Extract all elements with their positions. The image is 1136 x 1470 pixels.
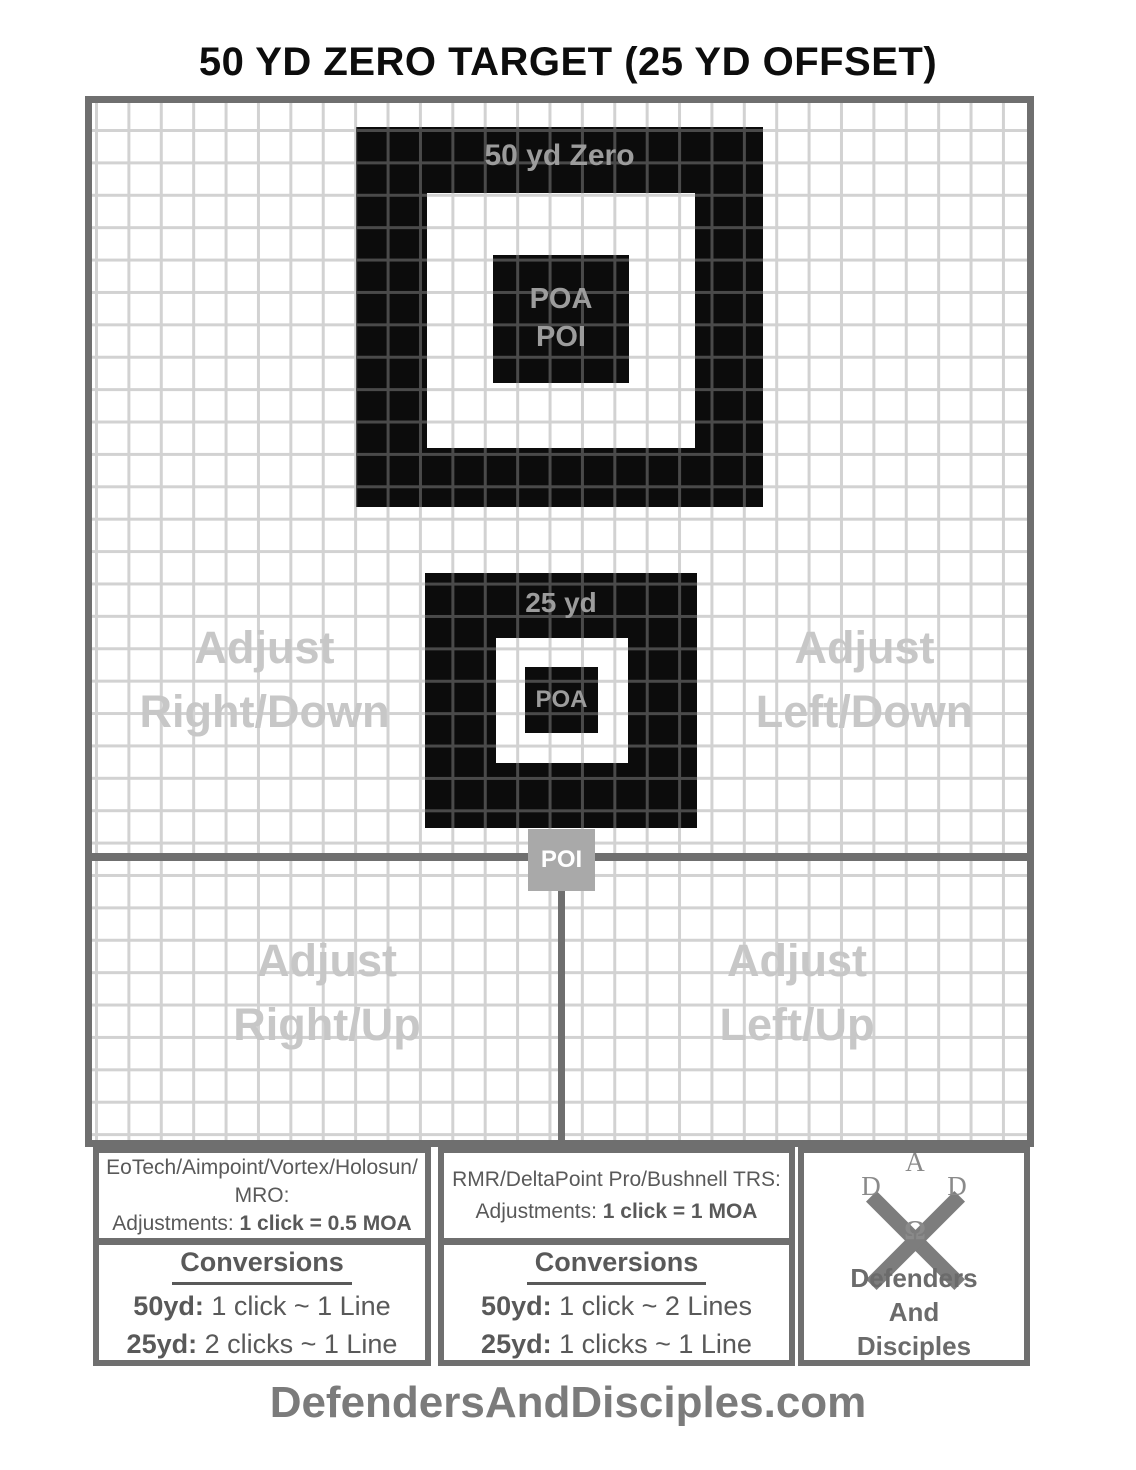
optics-info-eotech: EoTech/Aimpoint/Vortex/Holosun/ MRO: Adj… — [99, 1153, 425, 1238]
watermark-adjust-left-down: Adjust Left/Down — [692, 616, 1037, 744]
conversion-value: 2 clicks ~ 1 Line — [197, 1329, 397, 1359]
watermark-line: Right/Up — [152, 993, 502, 1057]
watermark-line: Right/Down — [92, 680, 437, 744]
panel-brand-logo: A D D Ω Defenders And Disciples — [798, 1147, 1030, 1366]
brand-name-line: And — [804, 1295, 1024, 1329]
watermark-adjust-right-up: Adjust Right/Up — [152, 929, 502, 1057]
watermark-adjust-right-down: Adjust Right/Down — [92, 616, 437, 744]
adjustments-line: Adjustments: 1 click = 1 MOA — [476, 1196, 758, 1228]
target-25yd-outer-square: 25 yd POA — [425, 573, 697, 828]
poa-text: POA — [530, 284, 593, 316]
optics-info-rmr: RMR/DeltaPoint Pro/Bushnell TRS: Adjustm… — [444, 1153, 789, 1238]
target-50yd-center-square: POA POI — [493, 255, 629, 383]
conversion-label: 25yd: — [481, 1329, 552, 1359]
panel-eotech-aimpoint: EoTech/Aimpoint/Vortex/Holosun/ MRO: Adj… — [93, 1147, 431, 1366]
logo-letter-alpha: A — [895, 1147, 935, 1178]
watermark-line: Adjust — [692, 616, 1037, 680]
poi-text: POI — [536, 322, 586, 354]
conversion-label: 25yd: — [127, 1329, 198, 1359]
logo-letter-d-left: D — [851, 1171, 891, 1202]
watermark-adjust-left-up: Adjust Left/Up — [622, 929, 972, 1057]
adjustments-value: 1 click = 1 MOA — [603, 1200, 758, 1223]
conversions-rmr: Conversions 50yd: 1 click ~ 2 Lines 25yd… — [444, 1245, 789, 1360]
logo-area: A D D Ω Defenders And Disciples — [804, 1153, 1024, 1360]
conversion-row: 25yd: 1 clicks ~ 1 Line — [481, 1325, 752, 1363]
grid-frame: Adjust Right/Down Adjust Left/Down Adjus… — [85, 96, 1034, 1147]
target-50yd-poa-poi: POA POI — [493, 255, 629, 383]
vertical-divider-line — [558, 889, 565, 1140]
brand-name-line: Defenders — [804, 1261, 1024, 1295]
watermark-line: Adjust — [622, 929, 972, 993]
optics-line: MRO: — [235, 1182, 290, 1210]
conversion-value: 1 clicks ~ 1 Line — [552, 1329, 752, 1359]
poi-offset-marker: POI — [528, 829, 595, 891]
target-sheet: 50 YD ZERO TARGET (25 YD OFFSET) Adjust … — [0, 0, 1136, 1470]
target-25yd-white-ring: POA — [496, 638, 628, 763]
target-25yd-label: 25 yd — [425, 587, 697, 619]
adjustments-label: Adjustments: — [476, 1200, 603, 1223]
brand-name: Defenders And Disciples — [804, 1261, 1024, 1363]
target-25yd-poa: POA — [525, 667, 598, 733]
watermark-line: Adjust — [152, 929, 502, 993]
target-50yd-outer-square: 50 yd Zero POA POI — [356, 127, 763, 507]
conversions-eotech: Conversions 50yd: 1 click ~ 1 Line 25yd:… — [99, 1245, 425, 1360]
conversion-row: 50yd: 1 click ~ 1 Line — [133, 1287, 390, 1325]
panel-rmr-deltapoint: RMR/DeltaPoint Pro/Bushnell TRS: Adjustm… — [438, 1147, 795, 1366]
conversion-label: 50yd: — [133, 1291, 204, 1321]
optics-line: EoTech/Aimpoint/Vortex/Holosun/ — [106, 1154, 418, 1182]
target-50yd-white-ring: POA POI — [427, 193, 695, 448]
target-25yd-center-square: POA — [525, 667, 598, 733]
page-title: 50 YD ZERO TARGET (25 YD OFFSET) — [0, 40, 1136, 85]
logo-letter-omega: Ω — [895, 1215, 935, 1246]
conversion-row: 50yd: 1 click ~ 2 Lines — [481, 1287, 752, 1325]
website-url: DefendersAndDisciples.com — [0, 1378, 1136, 1428]
conversion-value: 1 click ~ 2 Lines — [552, 1291, 752, 1321]
watermark-line: Adjust — [92, 616, 437, 680]
target-50yd-label: 50 yd Zero — [356, 139, 763, 173]
conversion-row: 25yd: 2 clicks ~ 1 Line — [127, 1325, 398, 1363]
watermark-line: Left/Up — [622, 993, 972, 1057]
conversion-value: 1 click ~ 1 Line — [204, 1291, 391, 1321]
adjustments-line: Adjustments: 1 click = 0.5 MOA — [112, 1210, 411, 1238]
adjustments-label: Adjustments: — [112, 1212, 239, 1235]
brand-name-line: Disciples — [804, 1329, 1024, 1363]
adjustments-value: 1 click = 0.5 MOA — [240, 1212, 412, 1235]
optics-line: RMR/DeltaPoint Pro/Bushnell TRS: — [452, 1164, 781, 1196]
conversion-label: 50yd: — [481, 1291, 552, 1321]
watermark-line: Left/Down — [692, 680, 1037, 744]
conversions-title: Conversions — [172, 1243, 352, 1285]
logo-letter-d-right: D — [937, 1171, 977, 1202]
conversions-title: Conversions — [527, 1243, 707, 1285]
